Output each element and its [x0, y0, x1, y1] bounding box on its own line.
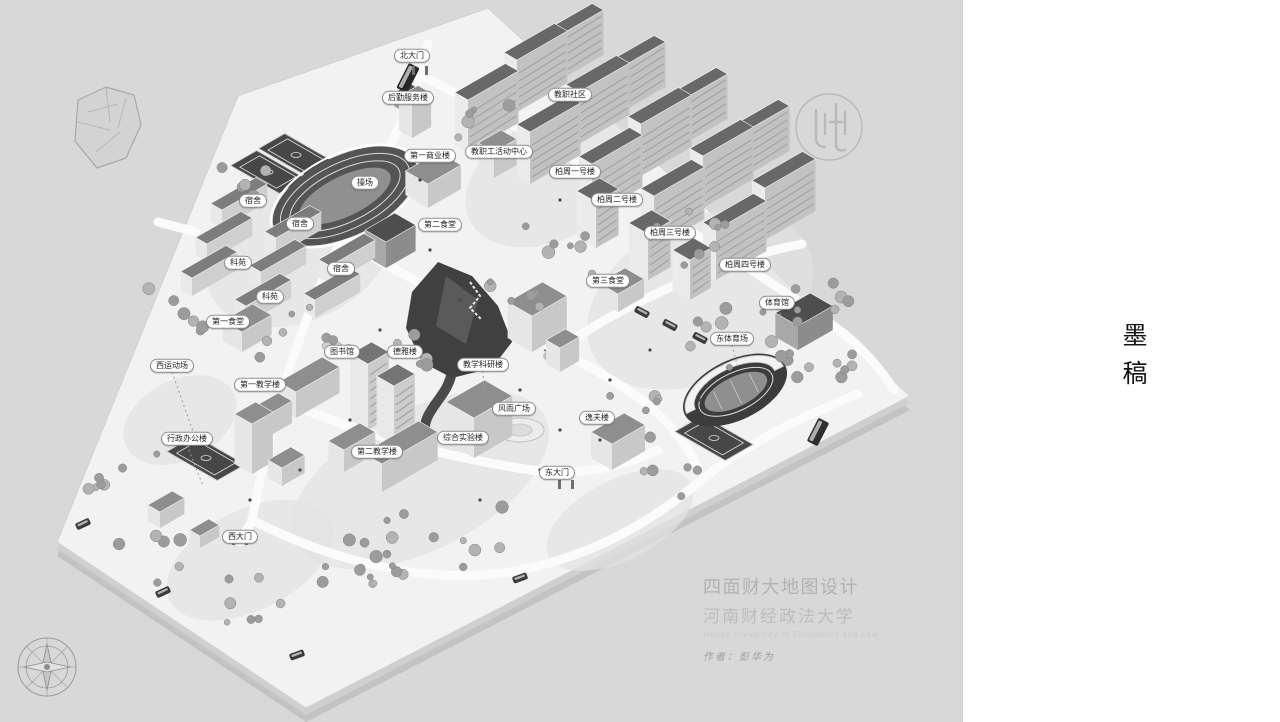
campus-map-poster: 北大门后勤服务楼教职社区教职工活动中心第一商业楼操场宿舍宿舍宿舍第二食堂柏周一号… — [0, 0, 1280, 722]
university-name-cn: 河南财经政法大学 — [703, 602, 913, 627]
artist-seal-icon — [792, 88, 866, 170]
signature-block: 四面财大地图设计 河南财经政法大学 Henan University of Ec… — [703, 573, 913, 663]
compass-rose — [12, 632, 82, 702]
campus-outline-minimap-icon — [66, 80, 150, 176]
university-name-en: Henan University of Economics and Law — [703, 630, 913, 639]
side-panel: 墨稿 — [962, 0, 1280, 722]
inset-map — [66, 80, 150, 180]
compass-icon — [12, 632, 82, 706]
draft-stage-title: 墨稿 — [1115, 322, 1151, 398]
author-credit: 作者：彭华为 — [703, 648, 913, 663]
seal-glyph — [792, 88, 866, 166]
map-design-title: 四面财大地图设计 — [703, 573, 913, 599]
